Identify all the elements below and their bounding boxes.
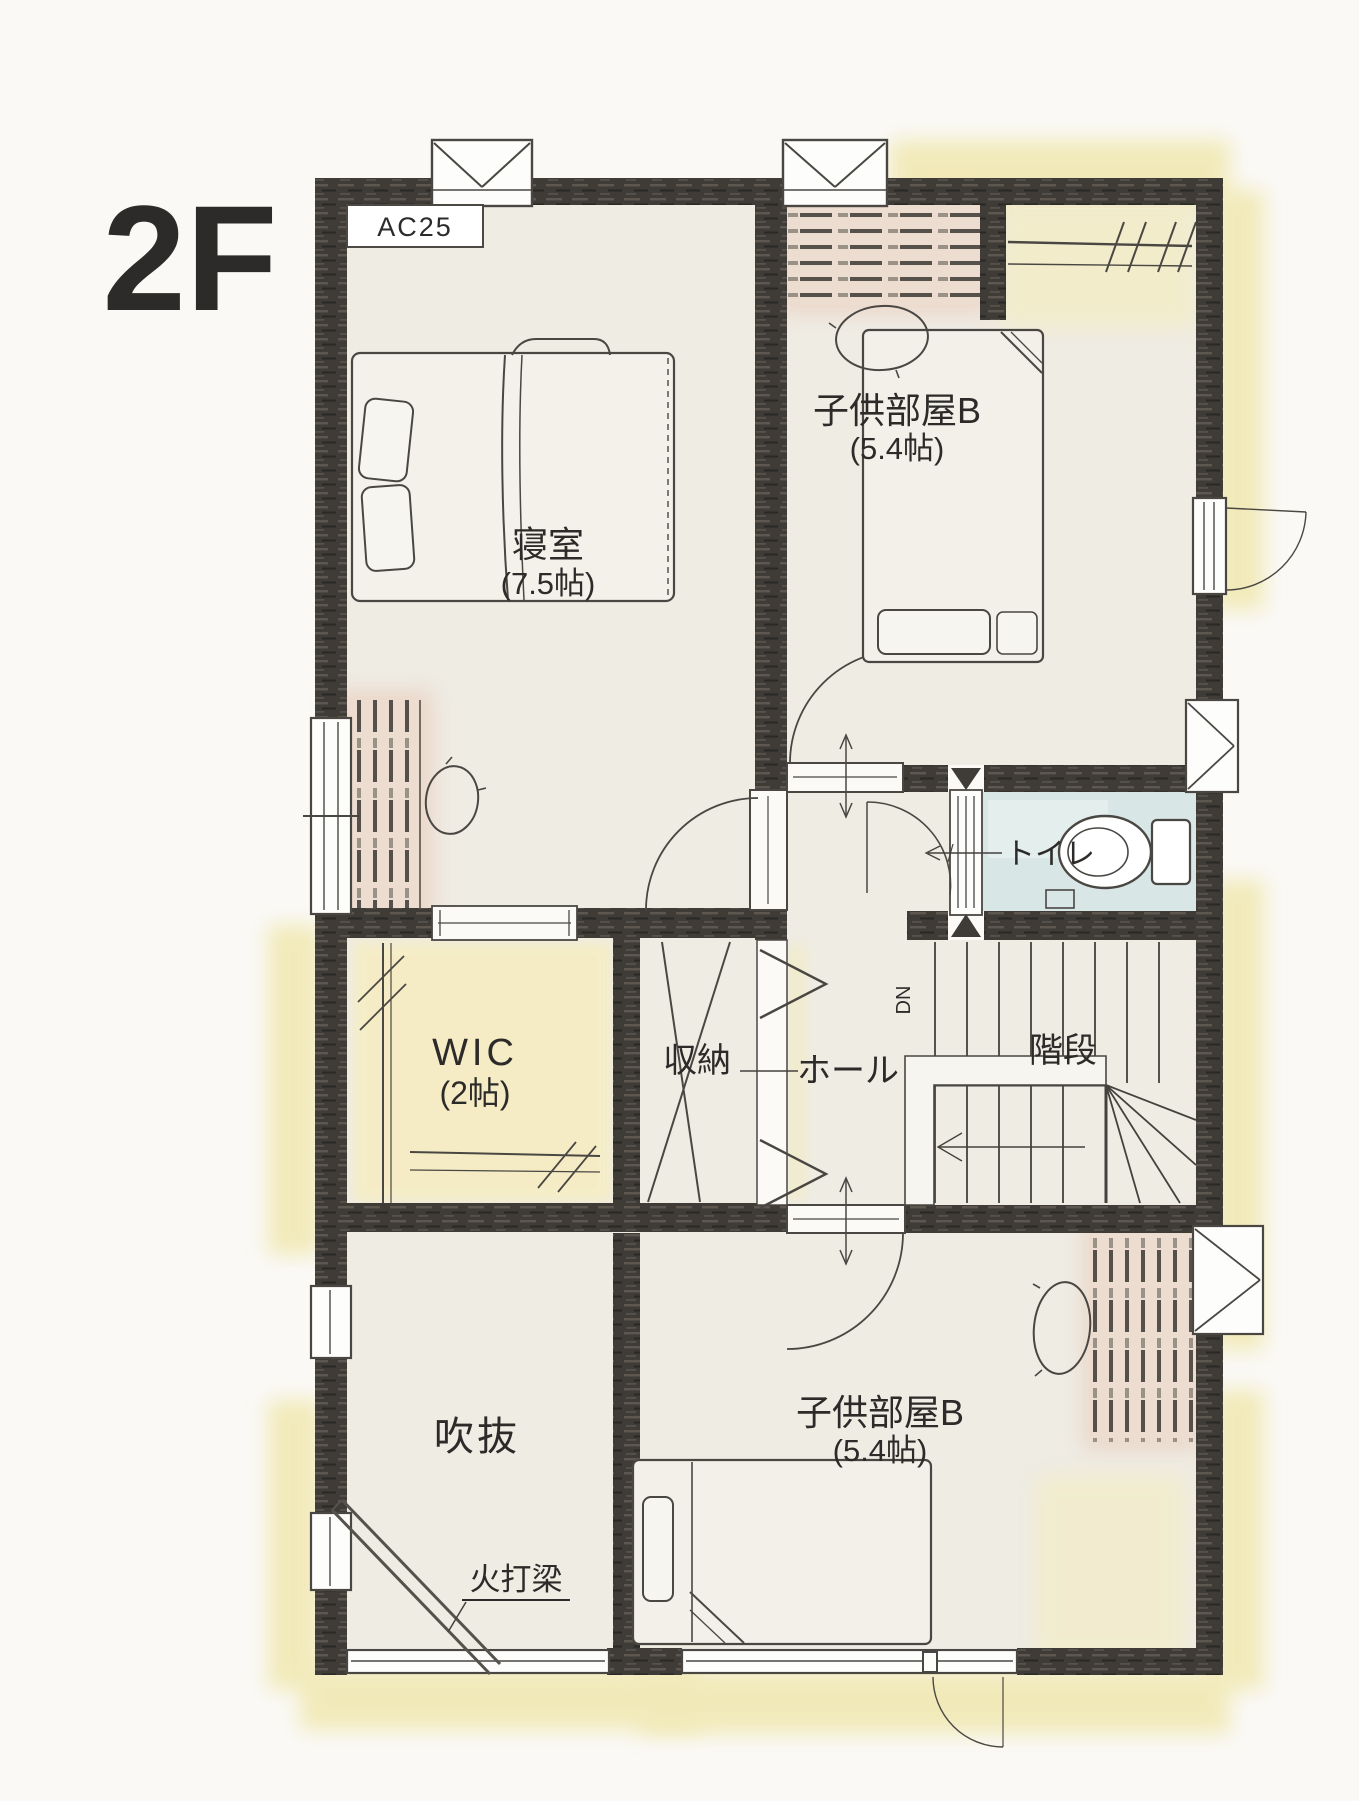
kids-room-top-closet <box>787 205 980 305</box>
wic-label: WIC <box>432 1032 518 1074</box>
kids-room-bottom-size: (5.4帖) <box>833 1433 928 1468</box>
window-right-toilet <box>1186 700 1238 792</box>
bed-kids-top <box>863 330 1043 662</box>
stairs-label: 階段 <box>1029 1032 1097 1070</box>
window-right-kids-top <box>1193 498 1226 594</box>
page-title: 2F <box>102 174 277 342</box>
bedroom-closet <box>350 700 420 910</box>
wic-sliding-door <box>432 906 577 940</box>
fix-window-top-left <box>432 140 532 206</box>
bedroom-label: 寝室 <box>512 524 584 565</box>
wic-size: (2帖) <box>439 1075 510 1111</box>
floor-plan-page: 2F AC25 寝室 (7.5帖) 子供部屋B (5.4帖) 子供部屋B (5.… <box>0 0 1359 1801</box>
void-label: 吹抜 <box>434 1415 520 1459</box>
hall-label: ホール <box>797 1052 899 1090</box>
ac-label: AC25 <box>377 212 453 242</box>
window-left-bedroom <box>303 718 360 914</box>
window-right-kids-bottom <box>1193 1226 1263 1334</box>
kids-room-bottom-closet <box>1093 1230 1193 1442</box>
kids-room-bottom-label: 子供部屋B <box>796 1392 964 1433</box>
kids-room-top-size: (5.4帖) <box>850 431 945 466</box>
stairs-down-label: DN <box>893 986 915 1015</box>
bed-kids-bottom <box>633 1460 931 1644</box>
floor-plan-drawing: 2F AC25 寝室 (7.5帖) 子供部屋B (5.4帖) 子供部屋B (5.… <box>0 0 1359 1801</box>
ac-label-box: AC25 <box>347 205 483 247</box>
bedroom-size: (7.5帖) <box>501 566 596 601</box>
window-bottom-kids-room <box>682 1650 1017 1673</box>
window-left-void-upper <box>311 1286 351 1358</box>
beam-label: 火打梁 <box>470 1562 563 1597</box>
toilet-label: トイレ <box>1005 838 1095 871</box>
kids-room-top-label: 子供部屋B <box>813 390 981 431</box>
storage-label: 収納 <box>663 1042 731 1080</box>
fix-window-top-right <box>783 140 887 206</box>
